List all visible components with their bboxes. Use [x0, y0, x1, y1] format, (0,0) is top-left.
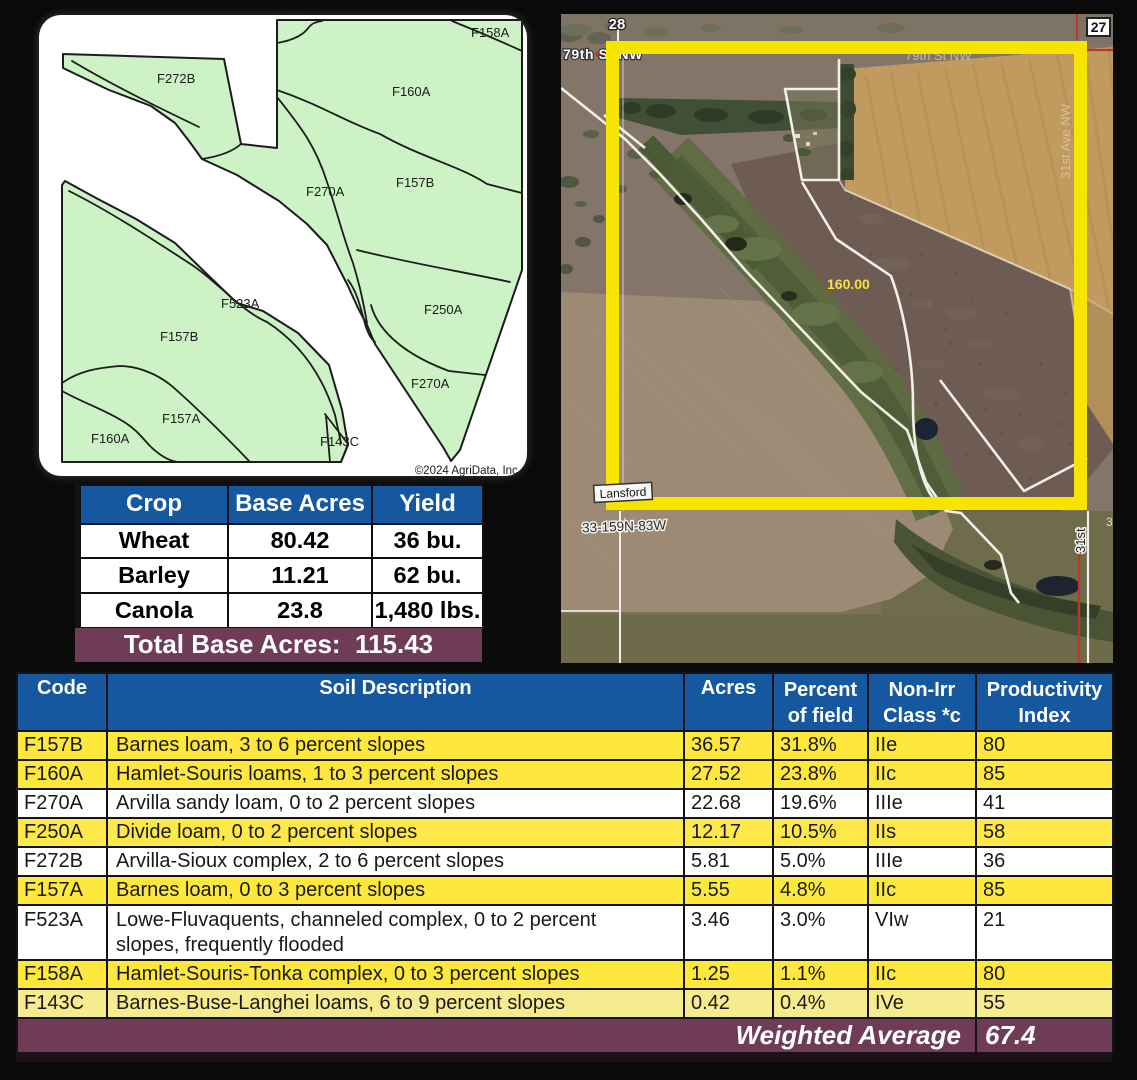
svg-text:F250A: F250A	[424, 302, 463, 317]
svg-text:F160A: F160A	[392, 84, 431, 99]
svg-text:28: 28	[609, 16, 626, 33]
svg-text:F523A: F523A	[221, 296, 260, 311]
svg-text:Lansford: Lansford	[599, 485, 646, 501]
svg-text:27: 27	[1091, 19, 1107, 35]
svg-text:3: 3	[1106, 515, 1113, 529]
svg-text:F157B: F157B	[396, 175, 434, 190]
svg-text:©2024 AgriData, Inc.: ©2024 AgriData, Inc.	[415, 465, 521, 476]
svg-text:31st: 31st	[1073, 528, 1088, 553]
svg-text:F158A: F158A	[471, 25, 510, 40]
svg-text:F270A: F270A	[306, 184, 345, 199]
svg-text:F157A: F157A	[162, 411, 201, 426]
svg-text:31st Ave NW: 31st Ave NW	[1058, 103, 1073, 179]
svg-text:F272B: F272B	[157, 71, 195, 86]
svg-text:F270A: F270A	[411, 376, 450, 391]
svg-text:F143C: F143C	[320, 434, 359, 449]
svg-text:F160A: F160A	[91, 431, 130, 446]
svg-text:F157B: F157B	[160, 329, 198, 344]
svg-text:160.00: 160.00	[827, 276, 870, 292]
svg-text:33-159N-83W: 33-159N-83W	[582, 517, 667, 535]
